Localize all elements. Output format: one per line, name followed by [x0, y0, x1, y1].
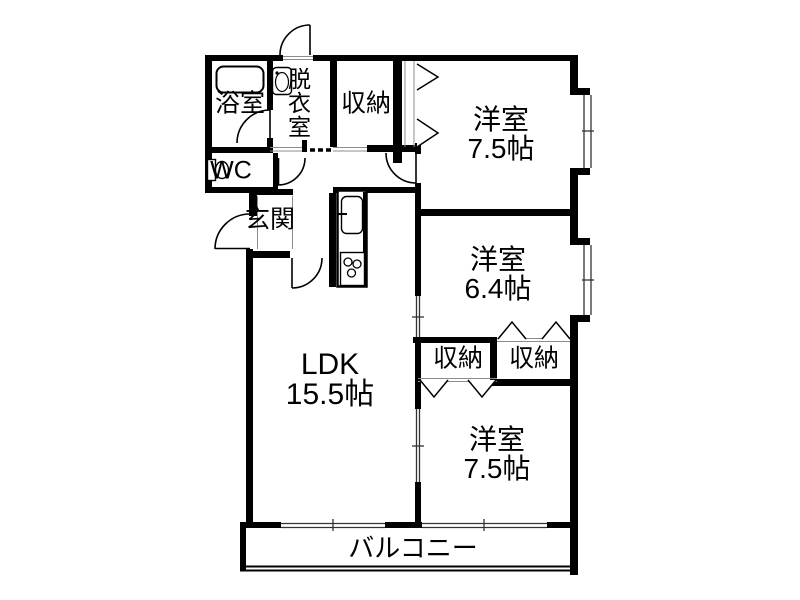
wc-door-arc — [278, 158, 305, 185]
room-label-western-room-top: 洋室 7.5帖 — [468, 105, 535, 163]
room-label-western-room-middle: 洋室 6.4帖 — [465, 245, 532, 303]
floor-plan-drawing — [0, 0, 800, 600]
room-label-ldk: LDK 15.5帖 — [286, 350, 374, 410]
balcony-rail — [240, 567, 578, 571]
room-label-storage-right: 収納 — [509, 347, 559, 372]
room-label-wc: WC — [210, 159, 252, 184]
ldk-door-arc — [292, 258, 322, 288]
room-size: 7.5帖 — [464, 454, 531, 483]
room-label-balcony: バルコニー — [348, 535, 477, 561]
room-size: 15.5帖 — [286, 380, 374, 410]
room-name: 洋室 — [465, 245, 532, 274]
room-label-bathroom: 浴室 — [215, 92, 265, 117]
room-size: 7.5帖 — [468, 134, 535, 163]
window-lines — [281, 95, 594, 531]
room-label-western-room-bottom: 洋室 7.5帖 — [464, 425, 531, 483]
room-size: 6.4帖 — [465, 274, 532, 303]
room-name: 洋室 — [468, 105, 535, 134]
room-name: 洋室 — [464, 425, 531, 454]
top-door-arc — [280, 25, 310, 55]
stove-burners-icon — [341, 253, 365, 286]
kitchen-counter — [337, 191, 367, 287]
room-label-storage-hall: 収納 — [341, 92, 391, 117]
room-label-storage-left: 収納 — [433, 347, 483, 372]
room-label-dressing-room: 脱衣室 — [286, 67, 309, 139]
room-label-entrance: 玄関 — [245, 208, 295, 233]
room-name: LDK — [286, 350, 374, 380]
floor-plan: 浴室 脱衣室 収納 WC 玄関 洋室 7.5帖 洋室 6.4帖 収納 収納 LD… — [0, 0, 800, 600]
